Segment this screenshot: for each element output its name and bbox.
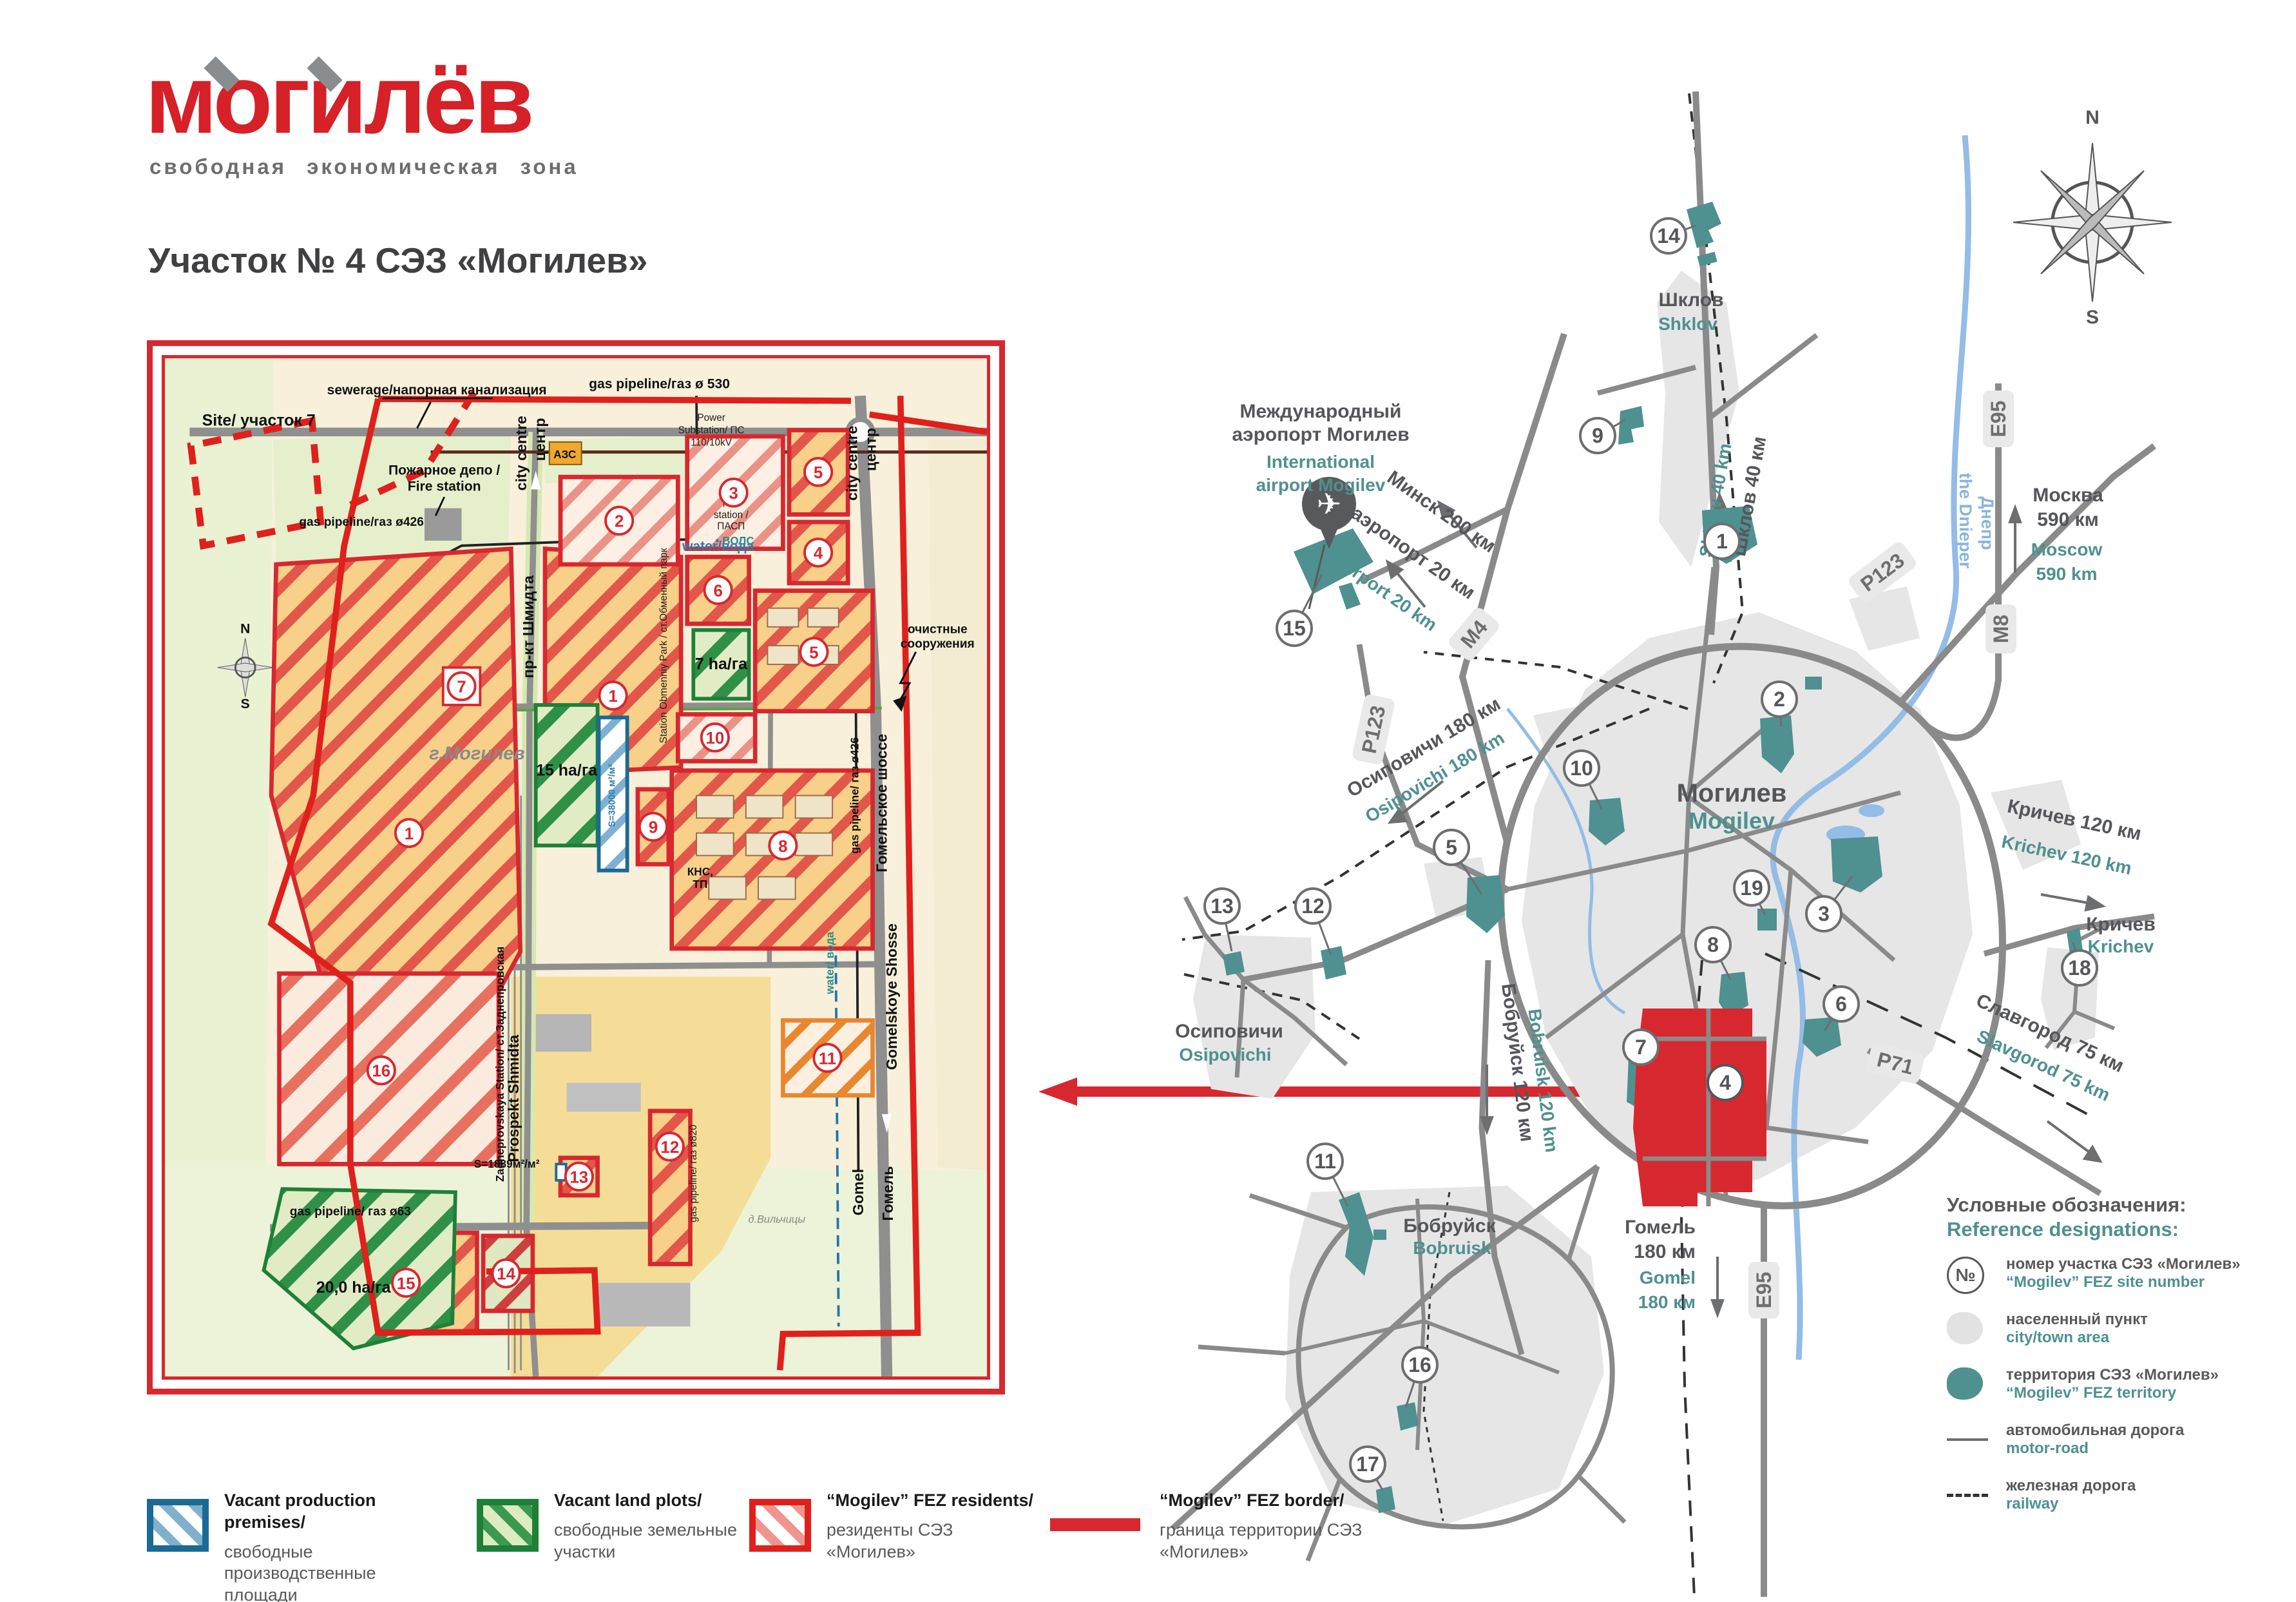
region-label: N [2085,107,2100,128]
site-label: Substation/ ПС [678,425,745,436]
svg-text:16: 16 [372,1061,390,1081]
region-label: 590 km [2036,564,2098,584]
site-label: Power [697,412,725,423]
site-label: gas pipeline/ газ ø426 [848,737,861,854]
svg-text:16: 16 [1408,1353,1431,1376]
site-marker-11: 11 [814,1044,841,1072]
region-label: 180 км [1638,1292,1696,1312]
reference-label-en: city/town area [2006,1329,2295,1347]
site-label: Gomel [850,1169,866,1215]
legend-swatch-sw-green [477,1499,539,1552]
site-label: д.Вильчицы [749,1213,806,1225]
svg-text:12: 12 [660,1137,679,1157]
region-label: International [1267,452,1375,472]
road-badge-E95: E95 [1748,1262,1779,1318]
svg-text:5: 5 [809,642,818,662]
site-marker-6: 6 [705,576,732,604]
logo-subtitle: свободная экономическая зона [149,155,579,179]
road-icon [1947,1423,1988,1464]
site-marker-9: 9 [640,813,667,841]
svg-text:15: 15 [397,1273,416,1293]
svg-text:9: 9 [1592,424,1603,447]
svg-text:15: 15 [1283,617,1306,640]
site-label: КНС, [687,865,713,878]
site-label: Гомель [879,1166,896,1221]
site-label: N [240,621,250,636]
region-site-14: 14 [1651,218,1696,253]
site-label: г.Могилев [429,743,524,764]
site-label: 15 ha/га [536,761,598,779]
site-label: Station Obmenniy Park / ст.Обменный парк [658,548,669,743]
site-label: 110/10kV [691,438,732,449]
svg-text:18: 18 [2068,956,2091,980]
svg-text:5: 5 [814,463,823,482]
site-label: gas pipeline/ газ ø820 [688,1124,699,1222]
region-label: Moscow [2031,539,2103,559]
svg-text:10: 10 [1570,757,1593,780]
site-label: Gomelskoye Shosse [883,923,900,1070]
reference-label-en: railway [2006,1495,2295,1513]
site-plan-map: Site/ участок 7sewerage/напорная канализ… [165,358,987,1376]
site-marker-3: 3 [720,479,747,507]
region-label: 180 км [1634,1241,1696,1262]
site-marker-14: 14 [492,1260,519,1288]
svg-text:10: 10 [705,728,724,748]
num-icon: № [1947,1257,1988,1298]
region-label: Бобруйск [1403,1215,1496,1237]
site-label: Пожарное депо / [388,463,500,478]
site-label: gas pipeline/ газ ø63 [290,1205,411,1219]
road-badge-M8: M8 [1985,604,2016,653]
svg-text:1: 1 [1716,530,1728,553]
legend-label-en: Vacant production premises/ [224,1490,437,1534]
reference-label-ru: железная дорога [2006,1477,2295,1495]
svg-text:4: 4 [814,543,823,563]
fire-station-building [425,508,462,541]
site-label: gas pipeline/газ ø426 [299,516,424,529]
region-label: S [2086,307,2099,328]
region-label: Шклов [1659,289,1724,311]
site-label: gas pipeline/газ ø 530 [589,376,730,391]
svg-text:6: 6 [713,581,722,600]
region-label: Mogilev [1689,807,1775,834]
legend-label-en: “Mogilev” FEZ border/ [1160,1490,1372,1512]
site-marker-13: 13 [566,1163,593,1190]
city-icon [1947,1312,1988,1353]
svg-text:17: 17 [1356,1452,1379,1476]
region-label: Москва [2033,485,2103,506]
site-marker-5: 5 [800,638,827,666]
svg-text:1: 1 [608,686,617,706]
site-label: ТП [693,878,707,891]
site-label: Prospekt Shmidta [505,1034,522,1163]
reference-label-en: motor-road [2006,1440,2295,1458]
reference-label-en: “Mogilev” FEZ territory [2006,1384,2295,1402]
svg-text:11: 11 [1314,1150,1336,1173]
svg-text:2: 2 [615,512,624,531]
region-label: Международный [1240,401,1402,422]
svg-text:1: 1 [405,824,414,843]
svg-text:8: 8 [1707,933,1719,956]
reference-item-city: населенный пунктcity/town area [1947,1311,2295,1352]
site-marker-7: 7 [443,668,481,705]
reference-label-ru: территория СЭЗ «Могилев» [2006,1366,2295,1384]
page-title: Участок № 4 СЭЗ «Могилев» [148,240,647,281]
site-marker-2: 2 [606,507,633,535]
legend-label-ru: свободные производственные площади [224,1541,437,1602]
site-marker-4: 4 [805,539,832,566]
site-label: station / [714,510,749,521]
region-label: Shklov [1658,314,1717,334]
legend-swatch-sw-red [749,1499,811,1552]
region-site-4: 4 [1708,1065,1743,1100]
site-label: city centre [844,426,861,501]
legend-label-en: “Mogilev” FEZ residents/ [827,1490,1039,1512]
site-marker-15: 15 [392,1269,419,1297]
site-label: Zadneprovskaya Station/ ст.Заднепровская [493,947,506,1182]
region-label: Bobruisk [1413,1238,1491,1258]
site-label: очистные [908,622,968,636]
site-plan-inner-border: Site/ участок 7sewerage/напорная канализ… [162,355,990,1380]
reference-label-en: “Mogilev” FEZ site number [2006,1273,2295,1291]
site-label: 20,0 ha/га [316,1279,392,1297]
site-marker-10: 10 [702,724,729,751]
legend-label-ru: резиденты СЭЗ «Могилев» [827,1520,1039,1563]
site-marker-12: 12 [656,1133,684,1161]
site-label: Fire station [408,479,481,494]
svg-text:7: 7 [1635,1036,1647,1059]
region-label: Gomel [1640,1268,1696,1288]
site-label: Site/ участок 7 [202,412,316,430]
svg-text:4: 4 [1719,1071,1731,1094]
reference-title-ru: Условные обозначения: [1947,1193,2295,1217]
reference-item-fez: территория СЭЗ «Могилев»“Mogilev” FEZ te… [1947,1366,2295,1407]
legend-label-en: Vacant land plots/ [554,1490,767,1512]
region-label: airport Mogilev [1256,475,1386,495]
site-marker-16: 16 [368,1057,395,1085]
svg-text:13: 13 [1210,894,1234,918]
region-label: аэропорт Могилев [1232,424,1409,445]
site-label: sewerage/напорная канализация [327,383,547,398]
svg-text:5: 5 [1446,836,1457,859]
reference-item-num: №номер участка СЭЗ «Могилев»“Mogilev” FE… [1947,1255,2295,1297]
site-label: Гомельское шоссе [874,734,890,873]
svg-text:E95: E95 [1987,401,2010,438]
svg-text:11: 11 [819,1048,836,1068]
site-label: S=1889м²/м² [474,1157,540,1170]
svg-text:2: 2 [1774,688,1785,711]
region-label: Гомель [1625,1217,1696,1238]
region-site-7: 7 [1623,1030,1658,1065]
region-label: 590 км [2037,509,2099,530]
region-label: Osipovichi [1179,1045,1271,1065]
road-badge-P123: P123 [1352,693,1396,766]
site-label: ПАСП [717,521,745,532]
svg-text:14: 14 [1657,224,1680,247]
site-marker-1: 1 [599,682,626,709]
svg-text:7: 7 [457,677,466,696]
svg-text:8: 8 [778,836,787,856]
reference-label-ru: населенный пункт [2006,1311,2295,1329]
region-site-1: 1 [1705,524,1739,559]
region-label: Могилев [1677,779,1787,807]
svg-text:19: 19 [1740,876,1763,900]
site-label: пр-кт Шмидта [520,575,537,679]
reference-title-en: Reference designations: [1947,1218,2295,1241]
site-label: water/ вода [823,932,836,995]
site-label: city centre [513,416,530,490]
site-label: центр [862,428,879,471]
road-badge-M4: M4 [1446,605,1502,662]
region-label: Днепр [1978,496,1997,550]
region-label: Krichev [2088,936,2154,956]
site-plan-frame: Site/ участок 7sewerage/напорная канализ… [147,340,1005,1395]
svg-text:3: 3 [1818,902,1830,925]
svg-text:14: 14 [497,1264,515,1284]
region-label: Осиповичи [1175,1021,1283,1042]
legend-label-ru: граница территории СЭЗ «Могилев» [1160,1520,1372,1563]
site-label: 7 ha/га [695,655,748,673]
rail-icon [1947,1478,1988,1520]
reference-designations: Условные обозначения: Reference designat… [1947,1193,2295,1518]
site-label: АЗС [553,448,577,461]
site-label: water/вода [682,539,754,554]
svg-text:3: 3 [729,483,738,503]
reference-item-road: автомобильная дорогаmotor-road [1947,1422,2295,1463]
site-label: сооружения [901,637,975,651]
svg-text:9: 9 [649,818,658,837]
road-badge-E95: E95 [1983,391,2014,447]
legend-swatch-sw-blue [147,1499,209,1552]
site-label: центр [531,418,548,461]
site-marker-1: 1 [396,819,423,847]
site-label: S [241,697,250,711]
fez-icon [1947,1367,1988,1409]
legend-label-ru: свободные земельные участки [554,1520,767,1563]
svg-text:12: 12 [1301,894,1325,918]
svg-text:13: 13 [569,1167,588,1186]
region-site-9: 9 [1580,418,1625,453]
compass-icon [2013,143,2172,302]
svg-text:M8: M8 [1989,615,2013,643]
svg-text:6: 6 [1835,992,1847,1016]
fez-mogilev-site4-poster: могилёв свободная экономическая зона Уча… [0,0,2296,1602]
site-label: S=38000 м²/м² [607,764,618,827]
legend-swatch-sw-bar [1050,1518,1140,1531]
region-label: Кричев [2086,914,2156,935]
svg-text:E95: E95 [1752,1272,1775,1309]
logo: могилёв [145,50,531,148]
site-marker-8: 8 [769,832,796,860]
reference-label-ru: автомобильная дорога [2006,1422,2295,1440]
region-label: the Dnieper [1956,473,1975,569]
reference-item-rail: железная дорогаrailway [1947,1477,2295,1518]
reference-label-ru: номер участка СЭЗ «Могилев» [2006,1255,2295,1273]
site-marker-5: 5 [805,458,832,486]
